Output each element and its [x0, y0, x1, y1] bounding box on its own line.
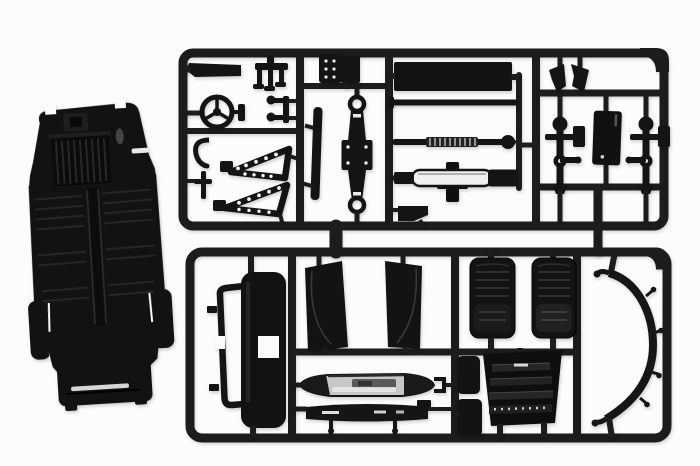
center-console	[241, 256, 286, 438]
small-panel-top	[455, 356, 480, 394]
bucket-seat-left	[470, 248, 515, 352]
bucket-seat-right	[532, 248, 576, 352]
door-panel-right	[385, 256, 422, 352]
door-panel-left	[305, 256, 348, 352]
side-sill-panel	[389, 62, 519, 91]
chassis-highlight-dash	[132, 148, 149, 154]
exhaust-bar	[184, 63, 241, 77]
small-panel-bottom	[455, 399, 482, 436]
engine-block	[319, 54, 360, 88]
model-kit-sprue-photo	[0, 0, 700, 466]
